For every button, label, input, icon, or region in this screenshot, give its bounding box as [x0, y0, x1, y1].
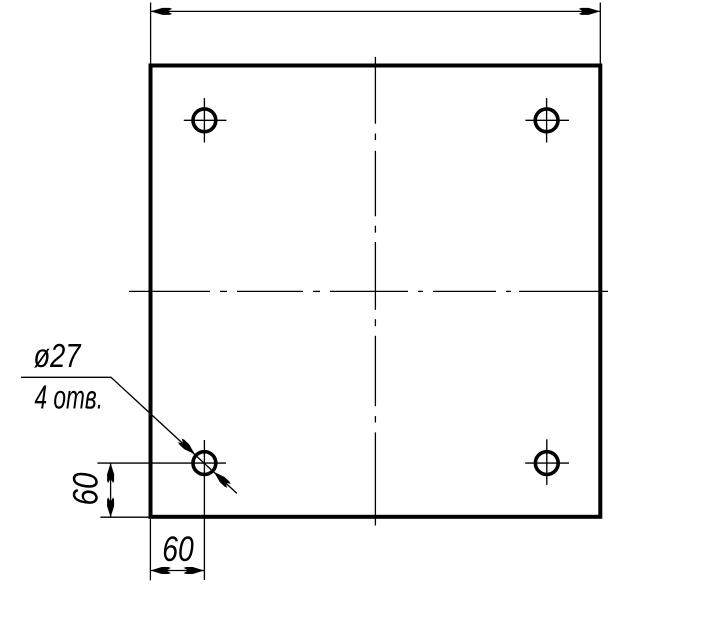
svg-text:4 отв.: 4 отв.: [35, 379, 104, 416]
svg-text:60: 60: [162, 529, 194, 569]
svg-text:60: 60: [67, 472, 106, 505]
svg-text:ø27: ø27: [34, 337, 82, 374]
